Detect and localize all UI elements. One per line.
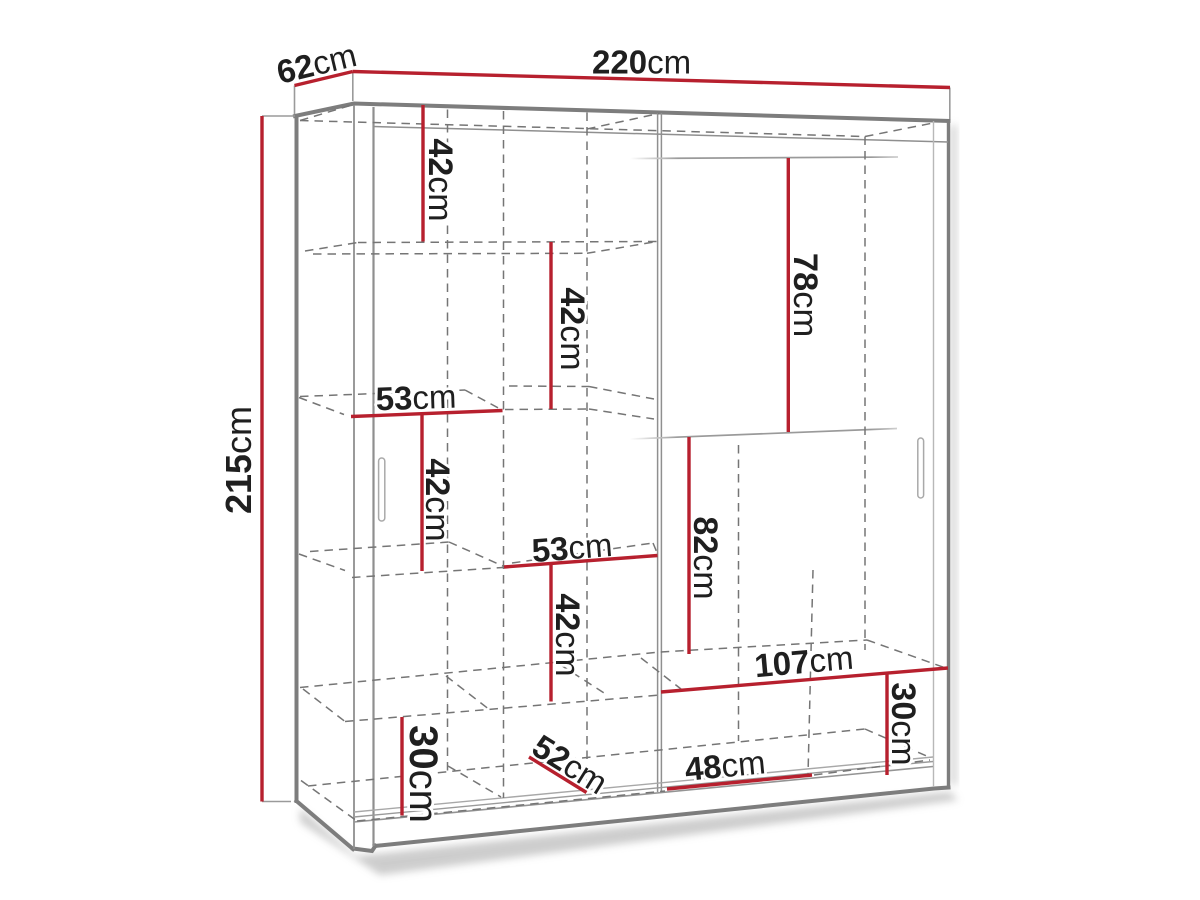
svg-text:62cm: 62cm [273,36,360,91]
svg-text:78cm: 78cm [786,253,824,337]
svg-text:215cm: 215cm [218,406,259,514]
svg-text:42cm: 42cm [418,458,456,541]
svg-text:30cm: 30cm [401,725,445,823]
svg-text:220cm: 220cm [592,44,691,81]
svg-text:42cm: 42cm [421,138,459,221]
svg-text:42cm: 42cm [548,593,586,676]
svg-text:30cm: 30cm [884,682,922,765]
svg-text:42cm: 42cm [553,287,591,370]
svg-text:82cm: 82cm [686,516,724,599]
